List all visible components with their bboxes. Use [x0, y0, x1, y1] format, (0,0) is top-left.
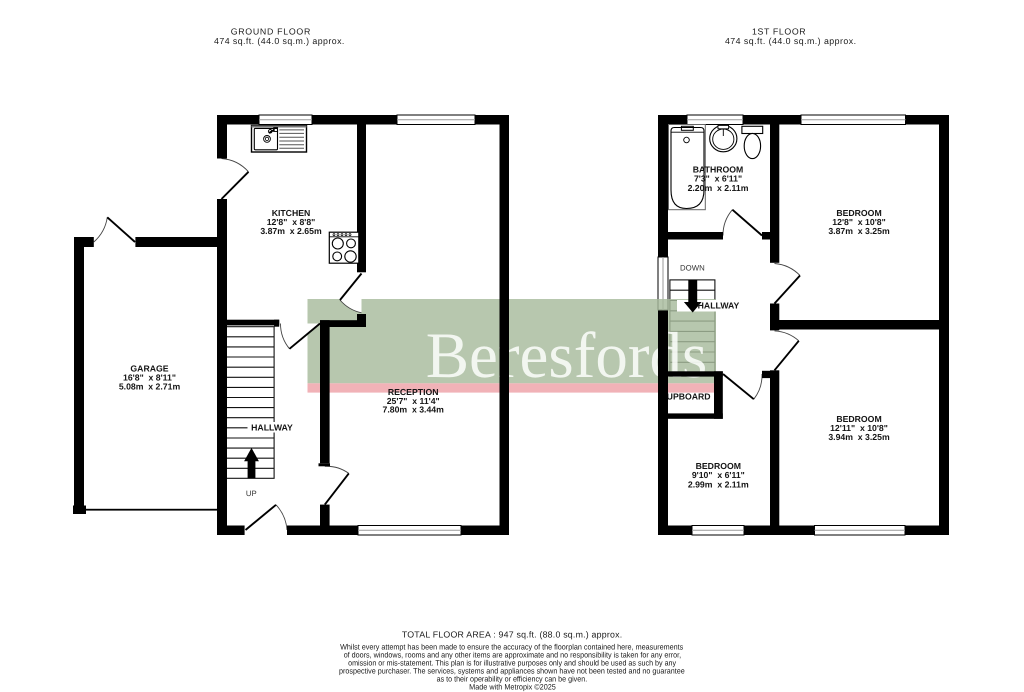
svg-text:2.99m x 2.11m: 2.99m x 2.11m [688, 479, 749, 489]
svg-text:TOTAL FLOOR AREA : 947 sq.ft.: TOTAL FLOOR AREA : 947 sq.ft. (88.0 sq.m… [402, 629, 622, 639]
svg-text:Made with Metropix ©2025: Made with Metropix ©2025 [469, 683, 556, 692]
svg-text:5.08m x 2.71m: 5.08m x 2.71m [119, 381, 181, 391]
svg-text:3.87m x 2.65m: 3.87m x 2.65m [260, 226, 322, 236]
svg-text:DOWN: DOWN [680, 263, 705, 272]
svg-text:7.80m x 3.44m: 7.80m x 3.44m [383, 404, 445, 414]
svg-text:3.94m x 3.25m: 3.94m x 3.25m [828, 432, 890, 442]
svg-text:HALLWAY: HALLWAY [698, 301, 740, 311]
svg-text:474 sq.ft. (44.0 sq.m.) approx: 474 sq.ft. (44.0 sq.m.) approx. [725, 36, 856, 46]
svg-text:2.20m x 2.11m: 2.20m x 2.11m [688, 183, 749, 193]
svg-text:3.87m x 3.25m: 3.87m x 3.25m [828, 226, 890, 236]
svg-text:GROUND FLOOR: GROUND FLOOR [231, 27, 311, 37]
svg-text:474 sq.ft. (44.0 sq.m.) approx: 474 sq.ft. (44.0 sq.m.) approx. [214, 36, 344, 46]
svg-text:UP: UP [246, 489, 257, 498]
svg-text:HALLWAY: HALLWAY [251, 423, 293, 433]
svg-text:1ST FLOOR: 1ST FLOOR [752, 27, 806, 37]
